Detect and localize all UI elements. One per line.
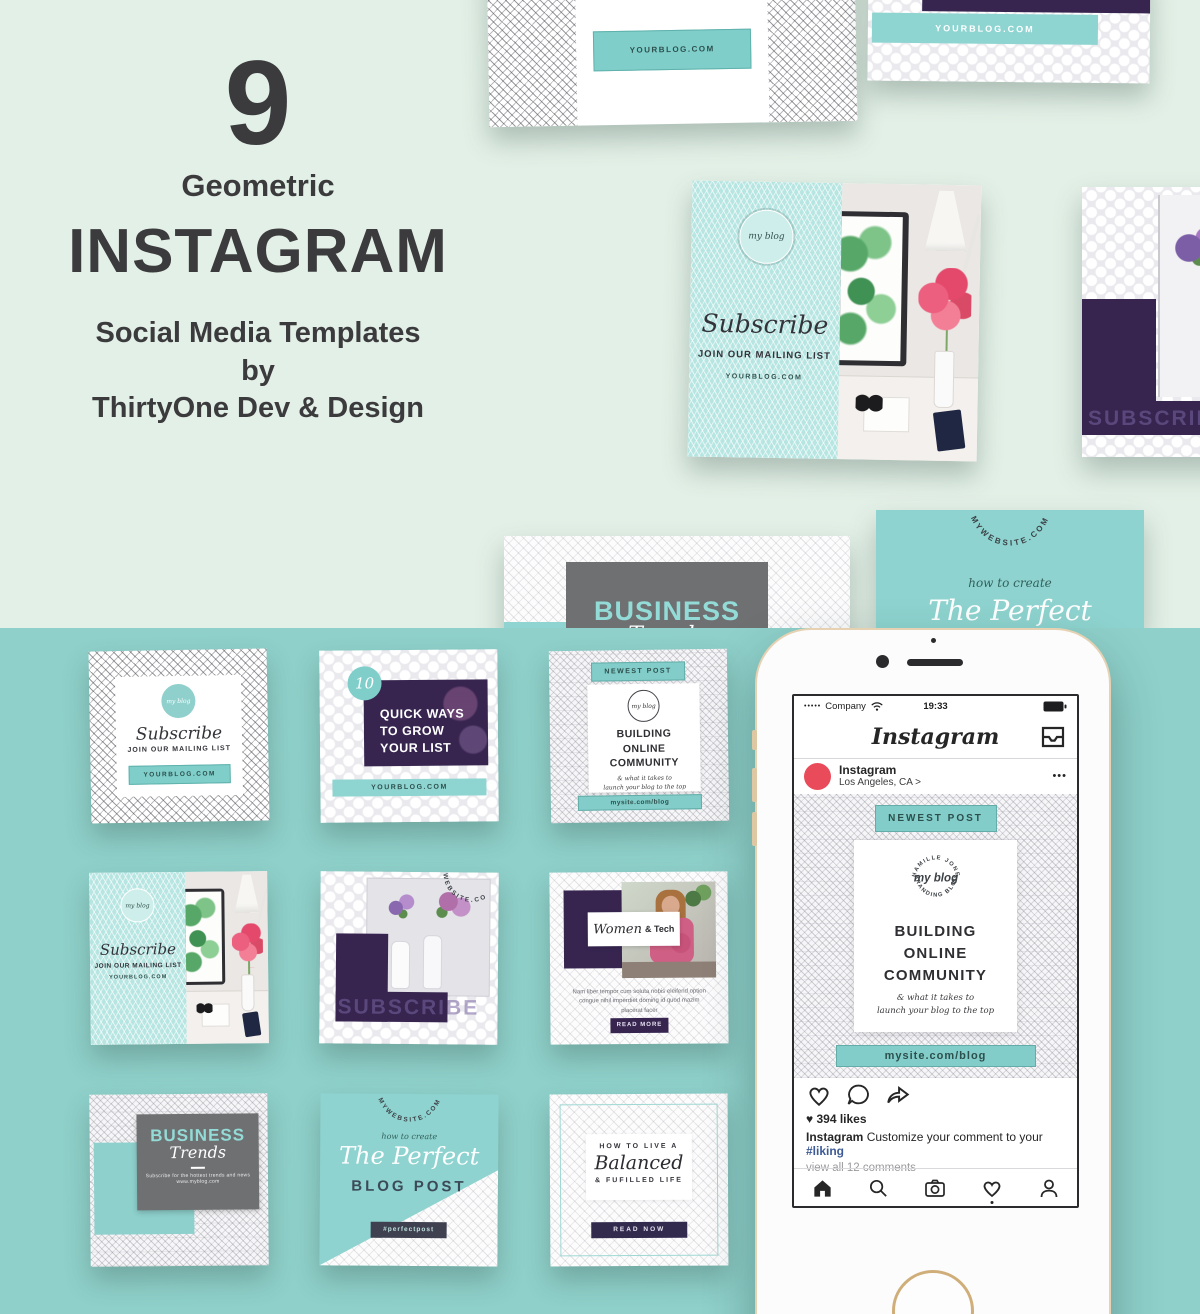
- photo-lamp-shade: [229, 875, 264, 913]
- post-header: Instagram Los Angeles, CA > •••: [794, 758, 1077, 794]
- post-tagline-line2: launch your blog to the top: [589, 782, 701, 793]
- post-title-line1: BUILDING: [588, 726, 700, 742]
- arc-website-text: MYWEBSITE.COM: [960, 514, 1060, 558]
- comment-icon[interactable]: [846, 1083, 871, 1107]
- vase-right: [423, 935, 442, 989]
- photo-peonies: [232, 923, 264, 968]
- mailing-list-text: JOIN OUR MAILING LIST: [90, 962, 186, 970]
- label-box: Women & Tech: [588, 912, 680, 947]
- photo-peonies: [918, 267, 972, 340]
- post-action-row: [794, 1078, 1077, 1112]
- post-info-block: ♥ 394 likes Instagram Customize your com…: [794, 1112, 1077, 1168]
- subscribe-ghost-text: SUBSCRIBE: [337, 995, 479, 1020]
- grid-card-vases-subscribe: MYWEBSITE.COM SUBSCRIBE: [319, 871, 498, 1045]
- yourblog-bar: YOURBLOG.COM: [332, 778, 486, 796]
- photo-monitor: [838, 210, 909, 366]
- likes-count[interactable]: 394 likes: [816, 1112, 866, 1126]
- blog-logo-script: my blog: [631, 702, 655, 709]
- hashtag-button: #perfectpost: [371, 1222, 447, 1239]
- read-now-button: READ NOW: [591, 1222, 687, 1239]
- blog-url-text: YOURBLOG.COM: [689, 372, 839, 382]
- photo-sunglasses: [855, 390, 883, 415]
- instagram-app-header: Instagram: [794, 716, 1077, 759]
- mute-switch: [752, 730, 757, 750]
- photo-vase: [242, 974, 255, 1011]
- quick-ways-line2: TO GROW: [380, 722, 488, 740]
- main-title: INSTAGRAM: [18, 216, 498, 287]
- blog-logo-badge: my blog: [739, 209, 794, 264]
- photo-sunglasses: [196, 1001, 213, 1017]
- grid-card-business-trends: BUSINESS Trends Subscribe for the hottes…: [89, 1093, 268, 1267]
- likes-heart-icon: ♥: [806, 1112, 813, 1126]
- blog-logo-badge: my blog: [627, 690, 659, 722]
- divider-dash: [191, 1167, 205, 1169]
- quick-ways-line3: YOUR LIST: [380, 739, 488, 757]
- how-to-create-text: how to create: [320, 1131, 498, 1141]
- subtitle-line2: by: [18, 353, 498, 391]
- instagram-logotype: Instagram: [872, 724, 1000, 750]
- share-icon[interactable]: [885, 1083, 911, 1107]
- photo-vase: [934, 350, 955, 408]
- yourblog-button: YOURBLOG.COM: [593, 29, 752, 72]
- subscribe-title: Subscribe: [90, 940, 186, 959]
- subscribe-title: Subscribe: [116, 723, 242, 745]
- svg-text:my blog: my blog: [913, 873, 957, 885]
- yourblog-bar: YOURBLOG.COM: [872, 13, 1098, 45]
- quick-ways-line1: QUICK WAYS: [380, 705, 488, 723]
- vase-left: [391, 941, 410, 989]
- inner-white-panel: HOW TO LIVE A Balanced & FUFILLED LIFE: [586, 1134, 692, 1201]
- mailing-list-text: JOIN OUR MAILING LIST: [116, 745, 242, 754]
- caption-text: Customize your comment to your: [867, 1130, 1043, 1144]
- purple-l-block: [1082, 299, 1156, 401]
- like-heart-icon[interactable]: [806, 1083, 832, 1107]
- subtitle-line3: ThirtyOne Dev & Design: [18, 390, 498, 428]
- count-number: 9: [18, 40, 498, 166]
- mailing-list-text: JOIN OUR MAILING LIST: [689, 348, 839, 362]
- post-title-line3: COMMUNITY: [854, 965, 1017, 987]
- post-title-line1: BUILDING: [854, 921, 1017, 943]
- front-camera: [876, 655, 889, 668]
- grid-card-quick-ways: QUICK WAYS TO GROW YOUR LIST 10 YOURBLOG…: [319, 649, 498, 823]
- clock-time: 19:33: [794, 701, 1077, 712]
- home-tab-icon[interactable]: [811, 1177, 834, 1199]
- tagline-text: Geometric: [18, 168, 498, 204]
- grid-card-women-tech: Women & Tech Nam liber tempor cum soluta…: [549, 871, 728, 1044]
- arc-website-text: MYWEBSITE.COM: [369, 1096, 449, 1133]
- svg-text:MYWEBSITE.COM: MYWEBSITE.COM: [969, 514, 1051, 547]
- subscribe-title: Subscribe: [690, 308, 840, 340]
- template-card-subscribe-large: my blog Subscribe JOIN OUR MAILING LIST …: [688, 180, 982, 461]
- business-sub-line2: www.myblog.com: [137, 1178, 259, 1185]
- desk-photo: [185, 871, 269, 1044]
- search-tab-icon[interactable]: [867, 1177, 890, 1199]
- blog-logo-badge: CHAMILLE JONES BRANDING BLOG my blog: [904, 846, 968, 910]
- how-to-create-text: how to create: [876, 576, 1144, 590]
- post-title-line2: ONLINE: [588, 741, 700, 757]
- pattern-border-right: [766, 0, 857, 122]
- template-card-perfect-cropped: MYWEBSITE.COM how to create The Perfect: [876, 510, 1144, 628]
- template-card-top-right: YOURBLOG.COM: [867, 0, 1150, 83]
- caption-hashtag[interactable]: #liking: [806, 1144, 844, 1158]
- pattern-border-left: [487, 0, 578, 127]
- subscribe-left-panel: my blog Subscribe JOIN OUR MAILING LIST …: [688, 180, 843, 459]
- subtitle-line1: Social Media Templates: [18, 315, 498, 353]
- post-tagline-line1: & what it takes to: [854, 992, 1017, 1005]
- purple-flowers: [1168, 223, 1200, 273]
- more-options-icon[interactable]: •••: [1052, 770, 1067, 782]
- tech-text: & Tech: [645, 924, 674, 934]
- gray-box: BUSINESS Trends Subscribe for the hottes…: [136, 1113, 259, 1210]
- blog-logo-script: my blog: [166, 697, 190, 704]
- status-bar: ••••• Company 19:33: [794, 696, 1077, 716]
- photo-passport: [933, 410, 965, 452]
- volume-down-button: [752, 812, 757, 846]
- live-a-text: HOW TO LIVE A: [586, 1143, 692, 1151]
- blog-logo-badge: my blog: [161, 684, 196, 719]
- the-perfect-script: The Perfect: [320, 1141, 498, 1170]
- post-tagline-line2: launch your blog to the top: [854, 1005, 1017, 1018]
- svg-text:MYWEBSITE.COM: MYWEBSITE.COM: [376, 1097, 442, 1124]
- photo-lamp-shade: [916, 190, 975, 252]
- volume-up-button: [752, 768, 757, 802]
- camera-tab-icon[interactable]: [923, 1177, 947, 1199]
- blog-logo-badge: my blog: [120, 888, 154, 922]
- inner-white-panel: my blog Subscribe JOIN OUR MAILING LIST …: [115, 675, 243, 797]
- blog-post-title: BLOG POST: [320, 1177, 498, 1195]
- bottom-nav-bar: [794, 1168, 1077, 1207]
- grid-card-perfect-post: MYWEBSITE.COM how to create The Perfect …: [319, 1093, 498, 1266]
- fufilled-text: & FUFILLED LIFE: [586, 1177, 692, 1185]
- blog-logo-script: my blog: [748, 231, 784, 242]
- inner-white-panel: my blog BUILDING ONLINE COMMUNITY & what…: [587, 683, 700, 793]
- photo-leaf-art: [185, 892, 222, 982]
- grid-card-newest-post: NEWEST POST my blog BUILDING ONLINE COMM…: [549, 649, 729, 823]
- post-title-line3: COMMUNITY: [588, 756, 700, 772]
- post-title-line2: ONLINE: [854, 943, 1017, 965]
- purple-content-box: QUICK WAYS TO GROW YOUR LIST: [364, 679, 489, 766]
- earpiece-speaker: [907, 659, 963, 666]
- yourblog-button: YOURBLOG.COM: [129, 764, 231, 785]
- iphone-mockup: ••••• Company 19:33 Instagram: [755, 628, 1111, 1314]
- purple-block: [922, 0, 1150, 13]
- newest-post-badge: NEWEST POST: [591, 661, 685, 681]
- mysite-bar: mysite.com/blog: [836, 1045, 1036, 1067]
- the-perfect-script: The Perfect: [876, 594, 1144, 627]
- photo-table: [622, 961, 716, 978]
- template-card-top-left: YOURBLOG.COM: [487, 0, 858, 127]
- profile-tab-icon[interactable]: [1037, 1177, 1061, 1199]
- purple-band: SUBSCRIBE: [1082, 401, 1200, 435]
- grid-card-subscribe-pattern: my blog Subscribe JOIN OUR MAILING LIST …: [89, 648, 270, 823]
- subscribe-ghost-text: SUBSCRIBE: [1088, 407, 1200, 431]
- caption-username[interactable]: Instagram: [806, 1130, 863, 1144]
- battery-icon: [1043, 701, 1067, 712]
- phone-screen: ••••• Company 19:33 Instagram: [792, 694, 1079, 1208]
- inner-white-panel: CHAMILLE JONES BRANDING BLOG my blog BUI…: [854, 840, 1017, 1032]
- home-button[interactable]: [892, 1270, 974, 1314]
- subscribe-left-panel: my blog Subscribe JOIN OUR MAILING LIST …: [89, 872, 187, 1045]
- grid-card-subscribe-photo: my blog Subscribe JOIN OUR MAILING LIST …: [89, 871, 269, 1045]
- direct-inbox-icon[interactable]: [1041, 726, 1065, 748]
- photo-monitor: [185, 889, 226, 985]
- desk-photo: [838, 183, 982, 461]
- women-script: Women: [593, 921, 642, 936]
- activity-heart-tab-icon[interactable]: [980, 1177, 1004, 1199]
- grid-card-balanced: HOW TO LIVE A Balanced & FUFILLED LIFE R…: [550, 1094, 729, 1267]
- template-card-subscribe-right-cropped: SUBSCRIBE: [1082, 187, 1200, 457]
- mysite-bar: mysite.com/blog: [578, 794, 702, 811]
- body-placeholder-text: Nam liber tempor cum soluta nobis eleife…: [572, 988, 706, 1017]
- activity-dot: [990, 1201, 993, 1204]
- number-badge: 10: [347, 666, 381, 700]
- post-location[interactable]: Los Angeles, CA >: [839, 777, 921, 789]
- profile-avatar[interactable]: [804, 763, 831, 790]
- post-username[interactable]: Instagram: [839, 763, 921, 777]
- blog-logo-script: my blog: [125, 902, 149, 909]
- photo-flowers-panel: [1158, 195, 1200, 397]
- photo-leaf-art: [838, 216, 903, 361]
- proximity-dot: [931, 638, 936, 643]
- post-image[interactable]: NEWEST POST CHAMILLE JONES BRANDING BLOG…: [794, 794, 1077, 1078]
- promo-canvas: 9 Geometric INSTAGRAM Social Media Templ…: [0, 0, 1200, 1314]
- balanced-script: Balanced: [586, 1152, 692, 1175]
- blog-url-text: YOURBLOG.COM: [90, 974, 186, 981]
- read-more-button: READ MORE: [610, 1018, 668, 1033]
- flower-blob-left: [381, 893, 417, 923]
- newest-post-badge: NEWEST POST: [875, 805, 997, 832]
- title-block: 9 Geometric INSTAGRAM Social Media Templ…: [18, 40, 498, 428]
